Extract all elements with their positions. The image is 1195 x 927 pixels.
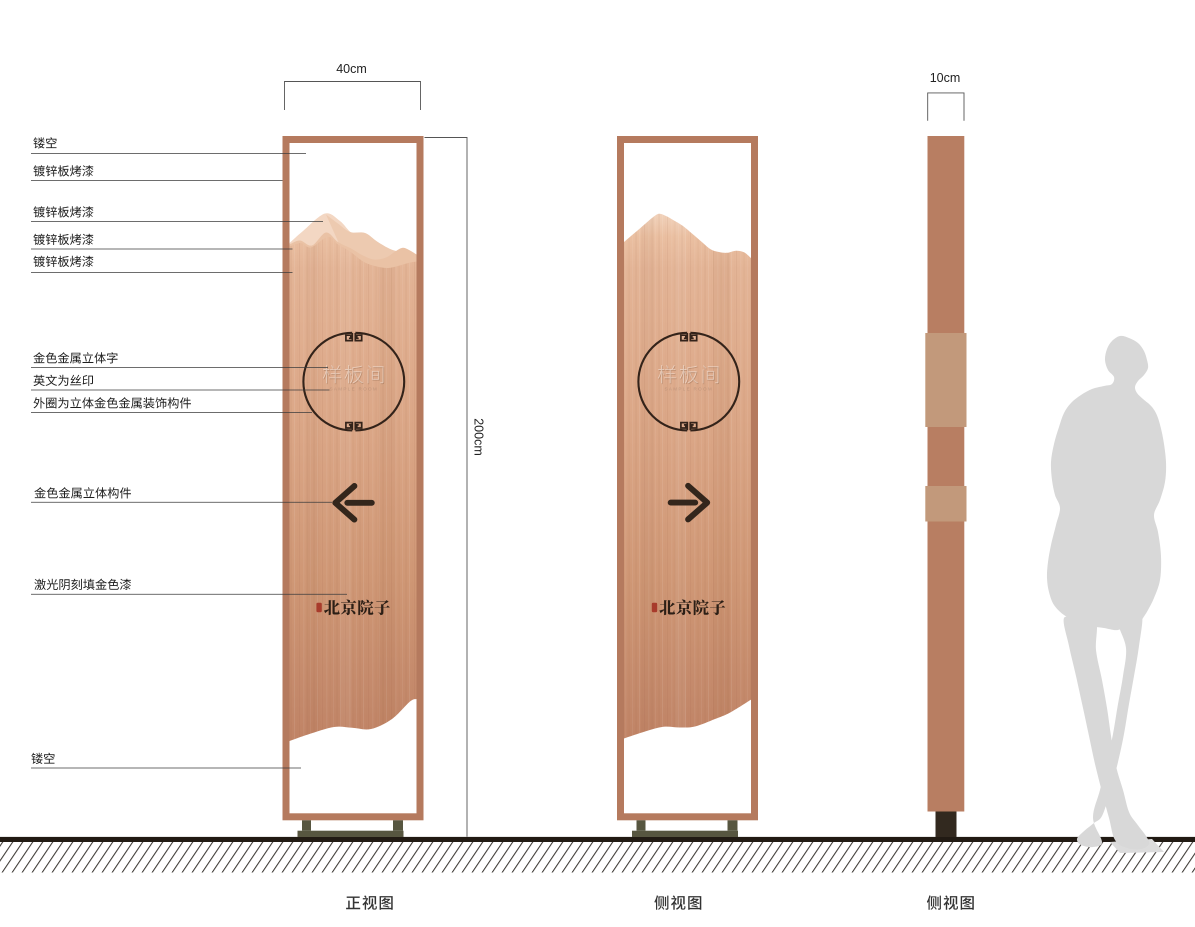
svg-text:10cm: 10cm bbox=[930, 71, 961, 85]
svg-text:40cm: 40cm bbox=[336, 62, 367, 76]
svg-text:SAMPLE ROOM: SAMPLE ROOM bbox=[665, 387, 714, 392]
svg-text:200cm: 200cm bbox=[472, 418, 486, 456]
svg-text:SAMPLE ROOM: SAMPLE ROOM bbox=[330, 387, 379, 392]
